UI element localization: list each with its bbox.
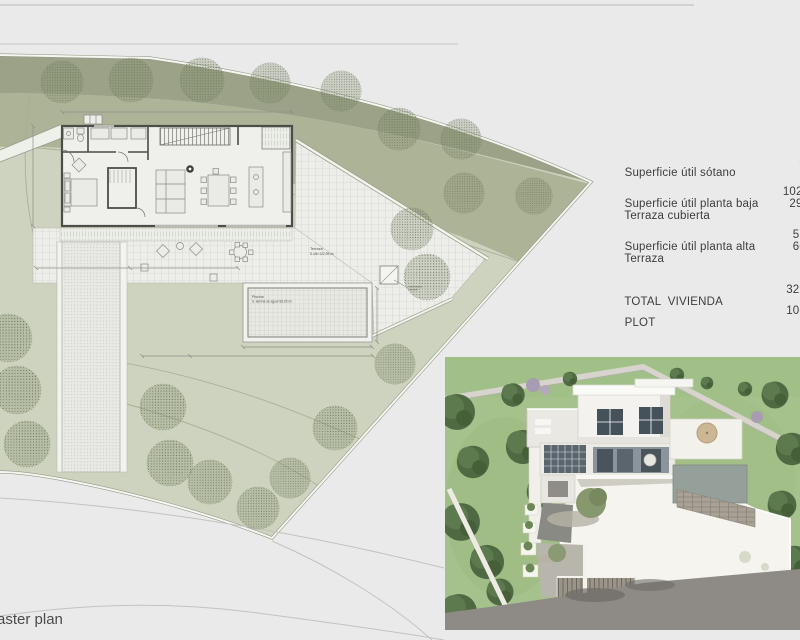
area-table: Superficie útil sótano 8 Superficie útil… (611, 0, 800, 360)
house-floor-plan (62, 115, 292, 226)
terrace-dining-set (644, 454, 656, 466)
driveway (57, 242, 127, 472)
villa-3d-render (445, 357, 800, 630)
row-value: 102, (783, 186, 800, 198)
row-value: 60 (793, 241, 800, 253)
pool-label: Piscina (252, 295, 264, 299)
pool: Piscina S. lámina de agua=36,00 m² (243, 283, 372, 342)
sheet-caption: aster plan (0, 611, 63, 628)
row-value: 108 (786, 305, 800, 317)
row-value: 329 (786, 284, 800, 296)
flower-bush (526, 378, 540, 392)
row-label: Superficie útil sótano (625, 167, 736, 179)
flower-bush (540, 385, 550, 395)
row-value: 29, (789, 198, 800, 210)
pool-area-label: S. lámina de agua=36,00 m² (252, 300, 292, 304)
flower-bush (751, 411, 763, 423)
table-row: Terraza (611, 241, 664, 277)
row-label: Terraza (624, 253, 664, 265)
table-row: PLOT (611, 305, 655, 341)
kitchen-cabinets (262, 127, 290, 149)
row-label: Terraza cubierta (624, 210, 710, 222)
master-plan-sheet: { "area_table": { "rows": [ {"label": "S… (0, 0, 800, 640)
row-label: PLOT (625, 317, 656, 329)
row-value: 57 (793, 229, 800, 241)
terrace-area-label: S.útil=122,95 m² (310, 252, 335, 256)
terrace-label: Terraza (310, 247, 324, 251)
